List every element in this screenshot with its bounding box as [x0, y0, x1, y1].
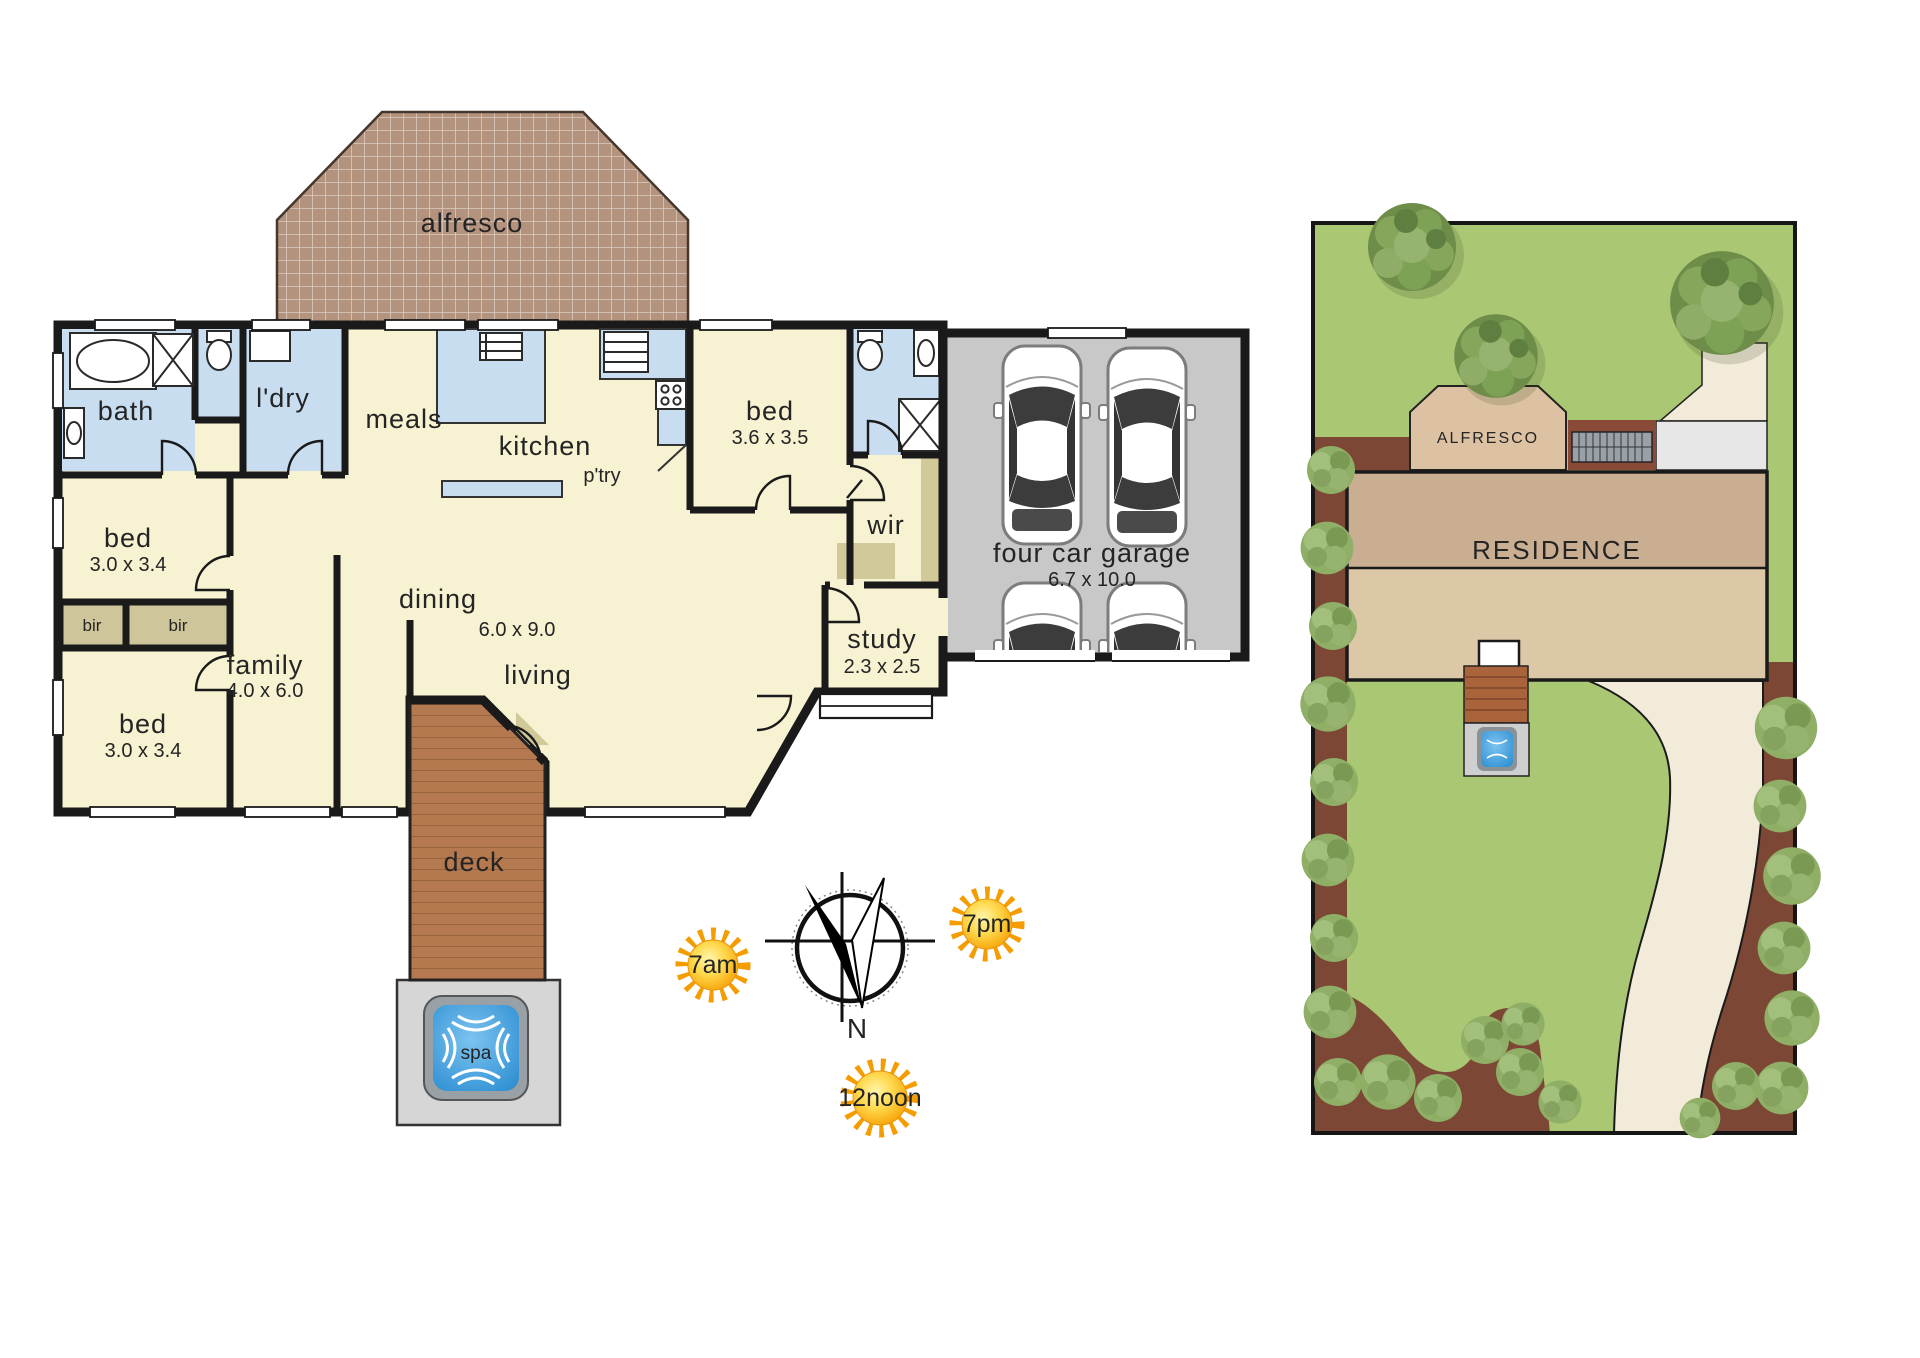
site-plan: ALFRESCO RESIDENCE	[1300, 203, 1820, 1138]
floorplan-canvas: alfresco bath l'dry meals kitchen p'try …	[0, 0, 1920, 1358]
bir-right-label: bir	[169, 616, 188, 635]
sun-12noon-label: 12noon	[838, 1084, 921, 1112]
living-label: living	[504, 660, 572, 690]
kitchen-label: kitchen	[499, 431, 592, 461]
site-alfresco-label: ALFRESCO	[1437, 430, 1539, 447]
site-spa	[1464, 723, 1529, 776]
bath-label: bath	[98, 396, 155, 426]
deck-area	[410, 700, 545, 980]
garage-dims: 6.7 x 10.0	[1048, 569, 1136, 591]
bed-front-label: bed	[119, 709, 167, 739]
sun-7pm-icon: 7pm	[956, 893, 1018, 955]
family-dims: 4.0 x 6.0	[227, 680, 304, 702]
pantry-label: p'try	[583, 465, 620, 487]
north-label: N	[847, 1013, 867, 1044]
site-deck-steps	[1464, 666, 1528, 723]
spa-label: spa	[461, 1043, 492, 1064]
car-icon	[1099, 348, 1195, 546]
bed-rear-dims: 3.6 x 3.5	[732, 427, 809, 449]
car-icon	[994, 346, 1090, 544]
rear-steps	[1572, 432, 1652, 462]
sun-7am-label: 7am	[689, 951, 738, 979]
bed-mid-dims: 3.0 x 3.4	[90, 554, 167, 576]
laundry-label: l'dry	[256, 383, 310, 413]
bed-mid-label: bed	[104, 523, 152, 553]
study-label: study	[847, 624, 917, 654]
bed-front-dims: 3.0 x 3.4	[105, 740, 182, 762]
bed-rear-label: bed	[746, 396, 794, 426]
deck-label: deck	[443, 847, 504, 877]
car-icon	[1099, 583, 1195, 781]
site-residence-label: RESIDENCE	[1472, 535, 1642, 565]
dining-label: dining	[399, 584, 477, 614]
sun-12noon-icon: 12noon	[838, 1065, 921, 1131]
sun-7pm-label: 7pm	[963, 910, 1012, 938]
bir-left-label: bir	[83, 616, 102, 635]
garage-label: four car garage	[993, 538, 1191, 568]
family-label: family	[227, 650, 304, 680]
study-dims: 2.3 x 2.5	[844, 656, 921, 678]
dining-dims: 6.0 x 9.0	[479, 619, 556, 641]
side-pad	[1656, 421, 1767, 470]
sun-7am-icon: 7am	[682, 934, 744, 996]
meals-label: meals	[365, 404, 442, 434]
floorplan-page: alfresco bath l'dry meals kitchen p'try …	[0, 0, 1920, 1358]
wir-label: wir	[866, 510, 905, 540]
garage-side-door	[938, 598, 948, 636]
alfresco-label: alfresco	[421, 208, 524, 238]
car-icon	[994, 583, 1090, 781]
site-residence	[1347, 472, 1767, 680]
compass-icon: N	[765, 872, 935, 1044]
